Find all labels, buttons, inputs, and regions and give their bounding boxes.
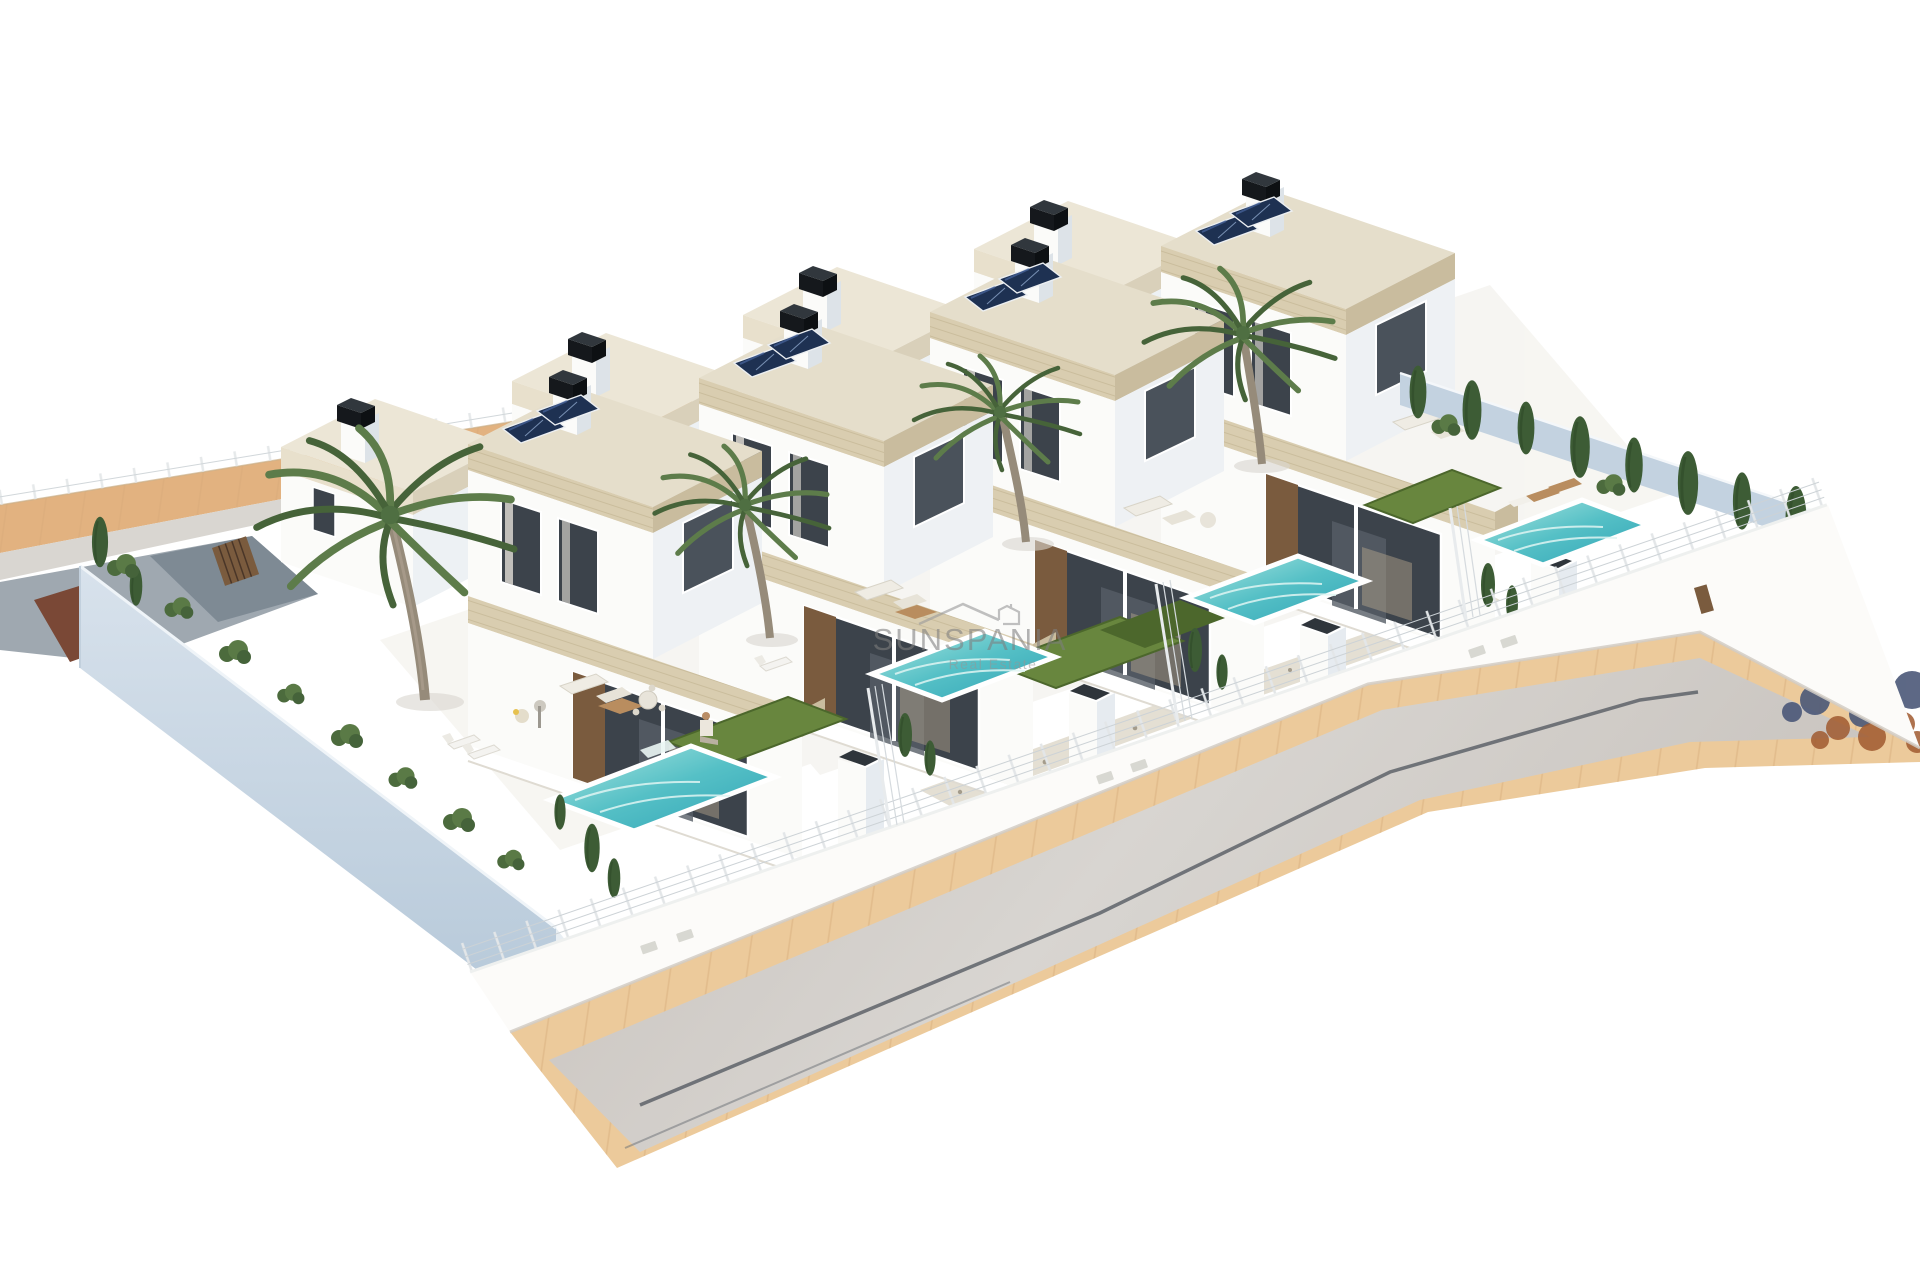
architectural-render: SUNSPANIA Real Estate: [0, 0, 1920, 1280]
render-canvas: [0, 0, 1920, 1280]
